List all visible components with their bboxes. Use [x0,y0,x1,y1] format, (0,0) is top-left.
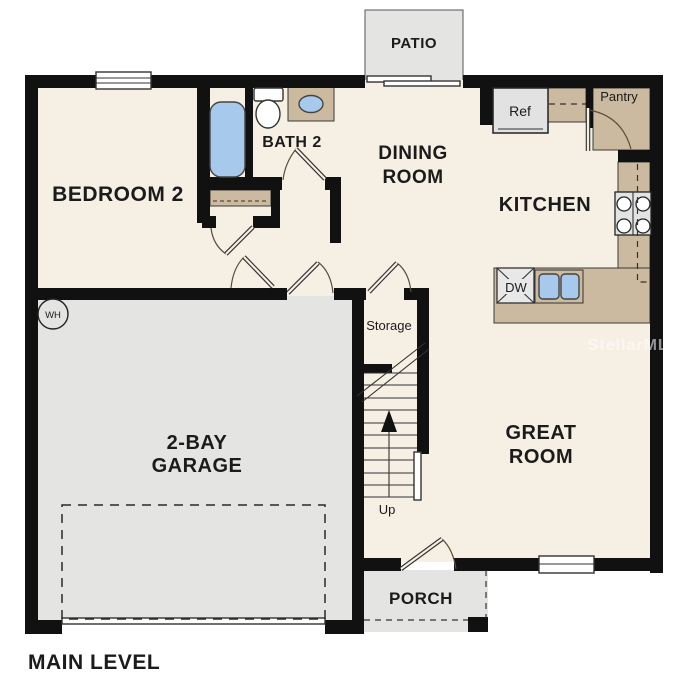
wall-segment [197,88,210,223]
patio-label: PATIO [391,35,437,52]
closet-shelf [210,190,271,206]
refrigerator-label: Ref [509,103,531,119]
floor-plan-svg: BEDROOM 2 BATH 2 DINING ROOM KITCHEN GRE… [0,0,687,687]
wall-segment [594,558,663,571]
wall-segment [352,288,364,634]
dining-label-line1: DINING [378,143,448,164]
wall-segment [25,75,38,634]
wall-segment [650,75,663,573]
wall-segment [202,216,216,228]
kitchen-sink-basin [561,274,579,299]
wall-segment [417,288,429,454]
wall-segment [197,177,282,190]
great-room-label-line2: ROOM [509,446,573,468]
floor-plan-image: BEDROOM 2 BATH 2 DINING ROOM KITCHEN GRE… [0,0,687,687]
stairs-up-label: Up [379,502,396,517]
wall-segment [25,620,62,634]
toilet-tank [254,88,283,101]
watermark-text: StellarMLS [588,337,681,354]
bath-sink [299,96,323,113]
toilet-bowl [256,100,280,128]
garage-label-line2: GARAGE [152,455,243,477]
stair-handrail [414,452,421,500]
wall-segment [330,190,341,243]
wall-segment [245,88,253,180]
bath2-label: BATH 2 [262,134,322,151]
wall-segment [618,150,663,162]
kitchen-sink-basin [539,274,559,299]
bathtub [210,102,245,177]
storage-label: Storage [366,318,412,333]
wall-segment [25,75,365,88]
dining-label-line2: ROOM [382,167,443,188]
bedroom-window [96,72,151,89]
wall-segment [325,177,341,190]
kitchen-label: KITCHEN [499,194,591,216]
dishwasher-label: DW [505,280,527,295]
bedroom2-label: BEDROOM 2 [52,183,184,206]
porch-post [468,617,488,632]
wall-segment [25,288,287,300]
wall-segment [480,75,493,125]
wall-segment [454,558,539,571]
wall-segment [364,558,401,571]
patio-slider-panel [384,81,460,86]
kitchen-counter-top [548,88,586,122]
wall-segment [253,216,280,228]
level-title: MAIN LEVEL [28,651,160,674]
porch-label: PORCH [389,589,453,608]
great-room-label-line1: GREAT [505,422,576,444]
water-heater-label: WH [45,310,61,321]
wall-segment [334,288,366,300]
pantry-label: Pantry [600,89,638,104]
garage-label-line1: 2-BAY [167,432,228,454]
